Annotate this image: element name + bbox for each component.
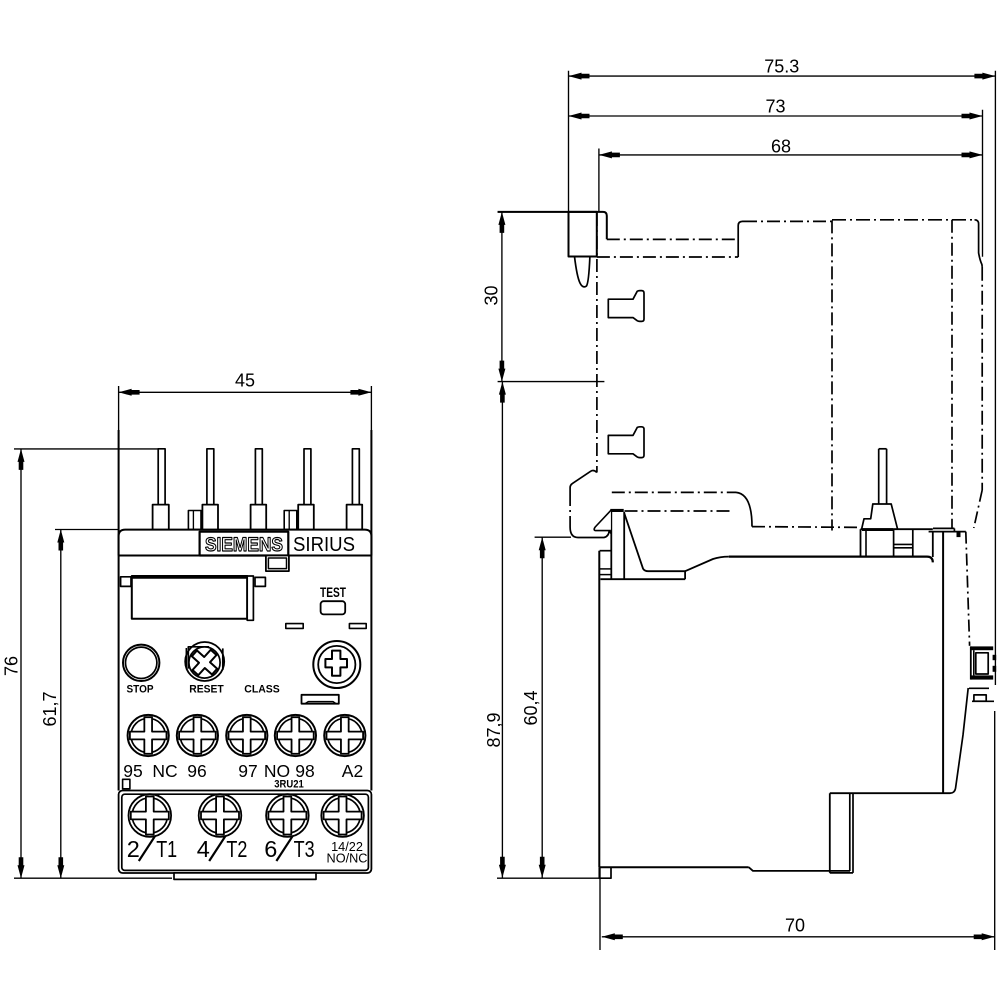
- svg-text:STOP: STOP: [127, 684, 154, 696]
- svg-text:61,7: 61,7: [40, 691, 60, 726]
- svg-text:73: 73: [765, 97, 785, 117]
- svg-text:TEST: TEST: [320, 585, 347, 600]
- svg-text:68: 68: [771, 137, 791, 157]
- svg-text:95: 95: [123, 761, 142, 781]
- svg-text:NO/NC: NO/NC: [327, 851, 368, 865]
- svg-text:70: 70: [785, 916, 805, 936]
- svg-text:96: 96: [187, 761, 206, 781]
- svg-text:45: 45: [235, 371, 255, 391]
- svg-text:CLASS: CLASS: [244, 684, 280, 696]
- svg-text:SIRIUS: SIRIUS: [293, 534, 355, 556]
- svg-text:76: 76: [2, 656, 22, 676]
- svg-text:87,9: 87,9: [484, 712, 504, 747]
- svg-text:NC: NC: [152, 761, 177, 781]
- svg-text:4: 4: [197, 836, 210, 862]
- svg-text:3RU21: 3RU21: [274, 778, 304, 790]
- svg-text:A2: A2: [342, 761, 363, 781]
- svg-text:T2: T2: [226, 836, 247, 862]
- svg-text:60,4: 60,4: [521, 690, 541, 725]
- svg-text:T3: T3: [294, 836, 315, 862]
- svg-text:RESET: RESET: [189, 684, 224, 696]
- svg-text:75.3: 75.3: [764, 57, 799, 77]
- svg-text:T1: T1: [156, 836, 177, 862]
- svg-text:97: 97: [238, 761, 257, 781]
- svg-text:2: 2: [127, 836, 140, 862]
- svg-text:6: 6: [264, 836, 277, 862]
- svg-text:SIEMENS: SIEMENS: [205, 534, 283, 556]
- svg-text:30: 30: [482, 285, 502, 305]
